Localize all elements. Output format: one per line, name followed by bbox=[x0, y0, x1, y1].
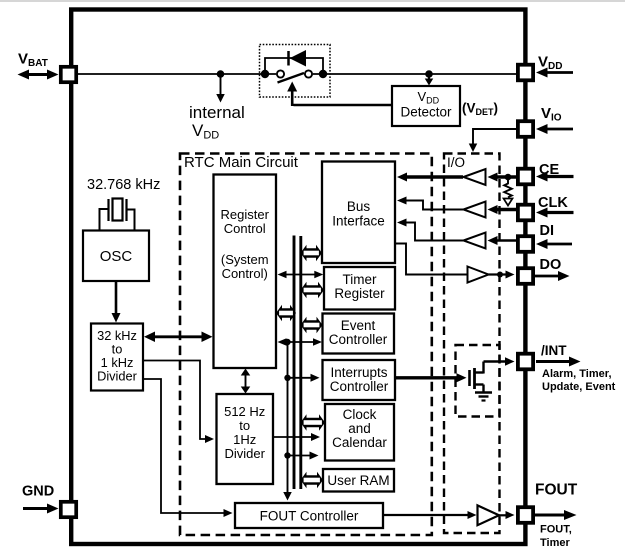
svg-text:Update, Event: Update, Event bbox=[542, 381, 616, 393]
svg-text:GND: GND bbox=[22, 484, 54, 500]
svg-text:32.768 kHz: 32.768 kHz bbox=[87, 177, 160, 193]
svg-text:DO: DO bbox=[540, 257, 562, 273]
svg-text:1Hz: 1Hz bbox=[233, 432, 256, 447]
svg-text:(System: (System bbox=[221, 252, 269, 267]
svg-text:Controller: Controller bbox=[330, 379, 389, 394]
svg-text:Timer: Timer bbox=[343, 272, 377, 287]
svg-text:Calendar: Calendar bbox=[332, 435, 387, 450]
svg-text:User RAM: User RAM bbox=[327, 473, 389, 488]
svg-text:to: to bbox=[239, 418, 250, 433]
svg-text:VDD: VDD bbox=[538, 54, 562, 73]
svg-text:I/O: I/O bbox=[447, 155, 465, 170]
svg-text:Interrupts: Interrupts bbox=[330, 365, 387, 380]
svg-text:Event: Event bbox=[341, 318, 376, 333]
svg-text:Timer: Timer bbox=[540, 537, 570, 549]
svg-text:VBAT: VBAT bbox=[18, 51, 48, 70]
svg-text:VIO: VIO bbox=[541, 105, 562, 124]
svg-text:/INT: /INT bbox=[541, 343, 567, 358]
svg-text:and: and bbox=[348, 421, 371, 436]
svg-text:Divider: Divider bbox=[224, 446, 265, 461]
svg-text:DI: DI bbox=[540, 223, 555, 239]
svg-text:FOUT Controller: FOUT Controller bbox=[260, 509, 359, 524]
svg-text:OSC: OSC bbox=[100, 248, 133, 265]
svg-text:512 Hz: 512 Hz bbox=[224, 404, 265, 419]
svg-text:Controller: Controller bbox=[329, 332, 388, 347]
svg-text:Control: Control bbox=[224, 221, 266, 236]
svg-text:RTC Main Circuit: RTC Main Circuit bbox=[184, 154, 299, 171]
svg-text:(VDET): (VDET) bbox=[462, 101, 498, 118]
svg-text:Detector: Detector bbox=[400, 105, 452, 120]
svg-text:VDD: VDD bbox=[192, 121, 219, 142]
svg-text:Control): Control) bbox=[222, 266, 268, 281]
svg-text:Register: Register bbox=[334, 286, 385, 301]
svg-text:Clock: Clock bbox=[343, 407, 377, 422]
svg-text:FOUT,: FOUT, bbox=[540, 524, 572, 536]
svg-text:Interface: Interface bbox=[332, 214, 385, 229]
svg-text:CLK: CLK bbox=[538, 195, 568, 211]
svg-text:Divider: Divider bbox=[97, 369, 138, 384]
svg-text:internal: internal bbox=[189, 103, 245, 122]
svg-text:FOUT: FOUT bbox=[535, 482, 578, 499]
svg-text:Bus: Bus bbox=[347, 199, 371, 214]
svg-text:Register: Register bbox=[220, 207, 269, 222]
svg-text:Alarm, Timer,: Alarm, Timer, bbox=[542, 368, 612, 380]
